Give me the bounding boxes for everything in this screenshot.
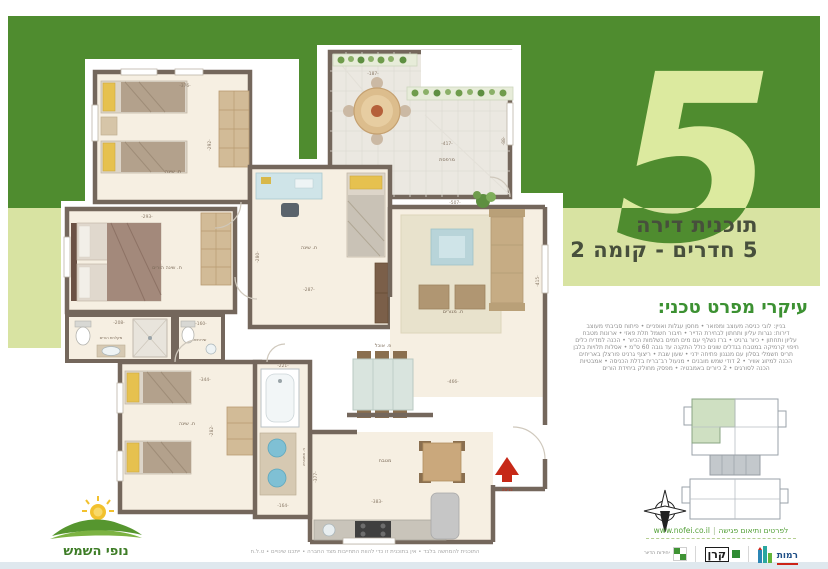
stove: [355, 521, 391, 539]
nightstand: [101, 117, 117, 135]
room-bedroom-mid: ח. שינה -287- -280-: [250, 167, 390, 327]
closet: [219, 91, 249, 167]
toilet: [75, 321, 91, 345]
logo-divider: [748, 546, 749, 562]
bath-dim-w: -221-: [277, 363, 289, 369]
living-dim-w: -507-: [449, 200, 461, 206]
logo-keren: קרן: [705, 547, 741, 562]
coffee-table: [431, 229, 473, 265]
page-title: תוכנית דירה 5 חדרים - קומה 2: [570, 213, 758, 263]
bed: [101, 81, 187, 113]
closet: [201, 213, 231, 285]
spec-text: בניין: לובי כניסה מעוצב ומפואר • מחסן עג…: [558, 323, 814, 372]
kitchen-dim-w: -383-: [371, 499, 383, 505]
living-label: ח. מגורים: [443, 309, 464, 315]
bath-dim-h: -164-: [277, 503, 289, 509]
spec-line: תריס חשמלי בסלון עם מנגנון פתיחה ידני • …: [558, 351, 814, 358]
armchair: [419, 285, 449, 309]
bed: [125, 441, 191, 474]
contact-text: לפרטים ותיאום פגישה: [719, 526, 789, 535]
bath-label: ח. אמבטיה: [301, 447, 306, 466]
floor-plan: -187- -417- -88- מרפסת: [55, 45, 575, 550]
closet: [227, 407, 253, 455]
fridge: [431, 493, 459, 539]
bed: [125, 371, 191, 404]
room-bedroom-top: -376- -292- ח. שינה: [95, 72, 250, 202]
kitchen-dim-h: -377-: [313, 471, 319, 483]
armchair: [455, 285, 485, 309]
room-bathroom: -221- ח. אמבטיה -164-: [255, 362, 310, 517]
bedroom-bottom-label: ח. שינה: [179, 421, 195, 427]
green-square-icon: [732, 550, 740, 558]
sink: [97, 345, 125, 357]
bedroom-top-dim-w: -376-: [179, 83, 191, 89]
room-kitchen: מטבח -383- -377-: [310, 432, 493, 542]
dining-dim-w: -466-: [447, 379, 459, 385]
wc-dim-w: -160-: [195, 321, 207, 327]
bedroom-bottom-dim-w: -344-: [199, 377, 211, 383]
living-dim-h: -415-: [535, 275, 541, 287]
terrace-dim-w: -417-: [441, 141, 453, 147]
spec-line: הכנה למיזוג אוויר • 2 דודי שמש מובנים • …: [558, 358, 814, 365]
room-shower-parents: -208- מקלחת הורים: [67, 315, 173, 361]
office-chair: [281, 203, 299, 217]
building-key-plan: [676, 393, 794, 525]
technical-spec-section: עיקרי מפרט טכני: בניין: לובי כניסה מעוצב…: [558, 297, 814, 372]
brand-logo: נופי השמש: [46, 490, 146, 559]
spec-line: בניין: לובי כניסה מעוצב ומפואר • מחסן עג…: [558, 323, 814, 330]
entrance-label: כניסה: [501, 488, 513, 493]
building-core: [710, 455, 760, 475]
brochure-page: 5 5 תוכנית דירה 5 חדרים - קומה 2 עיקרי מ…: [0, 0, 828, 569]
master-dim-w: -293-: [141, 214, 153, 220]
website-line: www.nofei.co.il|לפרטים ותיאום פגישה: [646, 526, 796, 539]
bedroom-bottom-dim-h: -282-: [209, 425, 215, 437]
kitchen-label: מטבח: [379, 458, 392, 464]
bedroom-mid-label: ח. שינה: [301, 245, 317, 251]
room-master-bedroom: -293- ח. שינה הורים: [67, 209, 235, 312]
wardrobe: [375, 263, 388, 323]
room-wc: -160- שירותים: [177, 315, 223, 361]
shower-stall: [133, 319, 167, 357]
bedroom-top-dim-h: -292-: [207, 139, 213, 151]
website-url: www.nofei.co.il: [654, 526, 710, 535]
title-line-1: תוכנית דירה: [570, 213, 758, 238]
spec-line: חיפוי קרמיקה במטבח בגדלים שונים כולל התק…: [558, 344, 814, 351]
spec-line: דירות: נגרות עליון ותחתון לבחירת הדייר •…: [558, 330, 814, 337]
planter-top: [333, 54, 417, 66]
logo-divider: [695, 546, 696, 562]
logo-housing-units: יחידות הדיור: [644, 547, 687, 561]
sun-hill-icon: [46, 490, 146, 540]
partner-logos: יחידות הדיור קרן רמות: [644, 541, 798, 567]
sink: [206, 344, 216, 354]
shower-label: מקלחת הורים: [100, 335, 123, 340]
double-sink-vanity: [260, 433, 296, 495]
logo-ramot: רמות: [758, 543, 798, 565]
bedroom-top-label: ח. שינה: [165, 169, 181, 175]
spec-line: הכנה לסורגים • 2 כיורים באמבטיה • מפסק מ…: [558, 365, 814, 372]
terrace-dim-top: -187-: [367, 71, 379, 77]
single-bed: [347, 173, 385, 257]
kitchen-table: [419, 441, 465, 483]
divider: |: [713, 526, 716, 535]
master-label: ח. שינה הורים: [152, 265, 182, 271]
sofa: [489, 209, 525, 311]
terrace-dim-h: -88-: [501, 136, 507, 145]
keren-logo-text: קרן: [705, 547, 730, 562]
disclaimer-text: התוכנית להמחשה בלבד • אין בתוכנית זו כדי…: [195, 549, 535, 555]
ramot-logo-text: רמות: [777, 551, 798, 561]
spec-heading: עיקרי מפרט טכני:: [558, 297, 814, 318]
title-line-2: 5 חדרים - קומה 2: [570, 238, 758, 263]
kitchen-sink: [323, 524, 335, 536]
dining-table: [353, 359, 413, 410]
checker-icon: [673, 547, 687, 561]
buildings-icon: [758, 546, 774, 563]
spec-line: עליון ותחתון • כיור גרניט • ברז נשלף עם …: [558, 337, 814, 344]
shower-dim-w: -208-: [113, 320, 125, 326]
terrace-label: מרפסת: [439, 157, 455, 163]
brand-name: נופי השמש: [46, 544, 146, 559]
bedroom-mid-dim-w: -287-: [303, 287, 315, 293]
units-logo-text: יחידות הדיור: [644, 551, 670, 557]
toilet-tank: [181, 321, 195, 327]
bedroom-mid-dim-h: -280-: [255, 251, 261, 263]
bathtub: [261, 369, 299, 427]
planter-mid: [407, 87, 513, 100]
dining-label: פ. אוכל: [375, 343, 392, 349]
ramot-red-line: [777, 563, 798, 565]
